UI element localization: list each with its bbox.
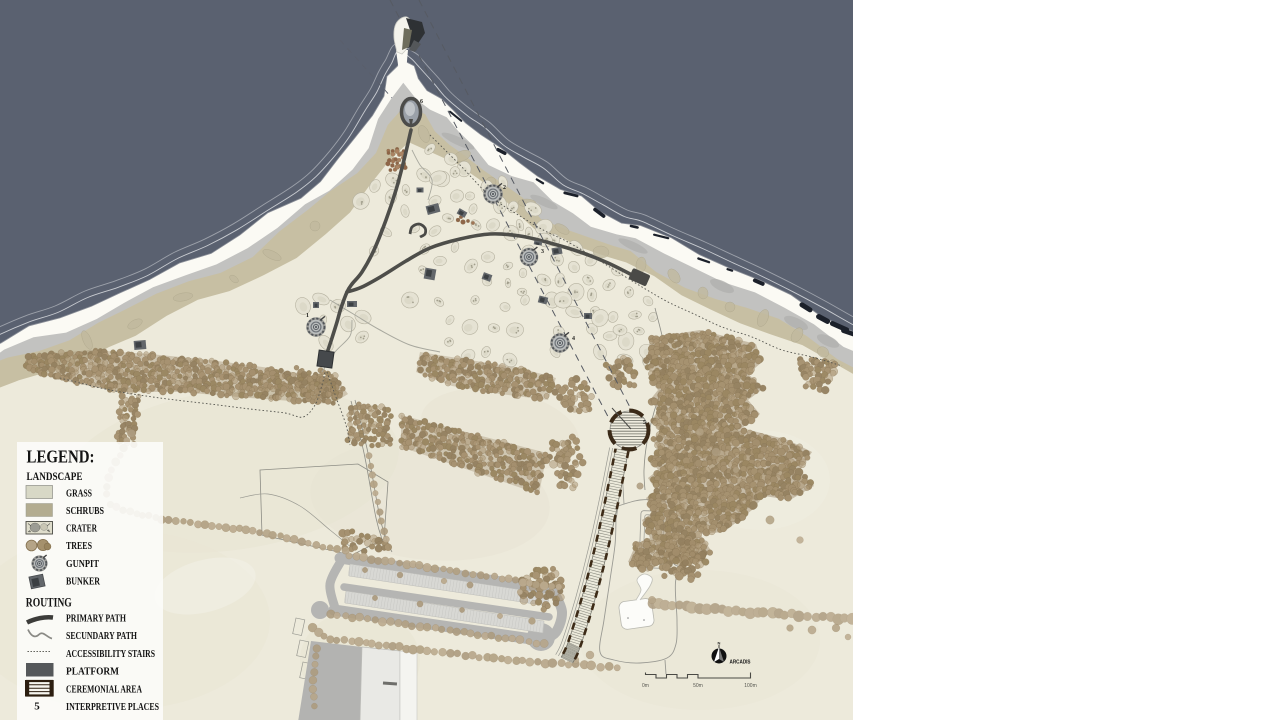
svg-text:GRASS: GRASS bbox=[66, 488, 92, 500]
svg-text:PLATFORM: PLATFORM bbox=[66, 666, 120, 678]
svg-text:1: 1 bbox=[306, 313, 309, 319]
svg-text:50m: 50m bbox=[693, 683, 703, 689]
svg-text:GUNPIT: GUNPIT bbox=[66, 558, 100, 570]
svg-text:BUNKER: BUNKER bbox=[66, 576, 101, 588]
svg-text:2: 2 bbox=[503, 185, 506, 191]
svg-text:INTERPRETIVE PLACES: INTERPRETIVE PLACES bbox=[66, 701, 159, 713]
svg-text:TREES: TREES bbox=[66, 540, 92, 552]
svg-text:PRIMARY PATH: PRIMARY PATH bbox=[66, 613, 126, 625]
svg-text:CEREMONIAL AREA: CEREMONIAL AREA bbox=[66, 683, 142, 695]
svg-text:5: 5 bbox=[643, 420, 646, 426]
svg-text:CRATER: CRATER bbox=[66, 523, 98, 535]
svg-text:ARCADIS: ARCADIS bbox=[730, 660, 751, 666]
svg-text:6: 6 bbox=[420, 99, 423, 105]
svg-text:5: 5 bbox=[34, 701, 40, 713]
svg-text:100m: 100m bbox=[744, 683, 757, 689]
svg-text:4: 4 bbox=[572, 336, 575, 342]
svg-text:SCHRUBS: SCHRUBS bbox=[66, 505, 104, 517]
svg-text:LEGEND:: LEGEND: bbox=[27, 447, 95, 467]
svg-text:SECUNDARY PATH: SECUNDARY PATH bbox=[66, 630, 137, 642]
svg-text:0m: 0m bbox=[642, 683, 649, 689]
svg-text:N: N bbox=[718, 641, 721, 646]
svg-text:ACCESSIBILITY STAIRS: ACCESSIBILITY STAIRS bbox=[66, 648, 155, 660]
svg-text:3: 3 bbox=[541, 249, 544, 255]
svg-text:ROUTING: ROUTING bbox=[26, 596, 72, 610]
svg-text:LANDSCAPE: LANDSCAPE bbox=[27, 469, 83, 483]
